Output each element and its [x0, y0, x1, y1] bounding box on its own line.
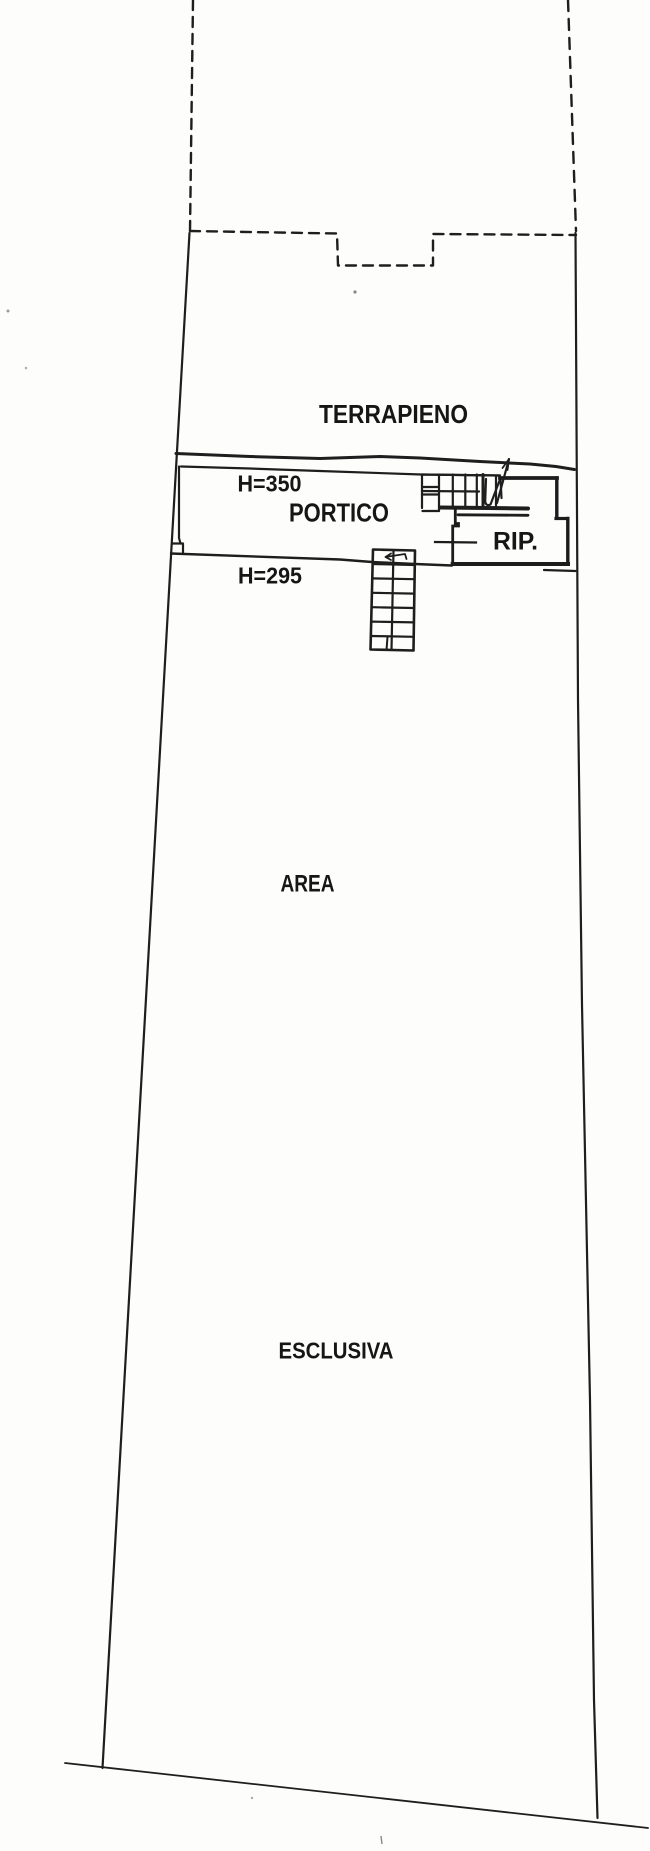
- svg-text:H=350: H=350: [238, 471, 302, 497]
- svg-text:PORTICO: PORTICO: [289, 498, 389, 528]
- svg-text:ESCLUSIVA: ESCLUSIVA: [279, 1338, 394, 1364]
- svg-text:RIP.: RIP.: [493, 528, 538, 556]
- svg-text:AREA: AREA: [281, 871, 335, 898]
- svg-text:TERRAPIENO: TERRAPIENO: [319, 399, 468, 429]
- svg-text:H=295: H=295: [238, 563, 302, 589]
